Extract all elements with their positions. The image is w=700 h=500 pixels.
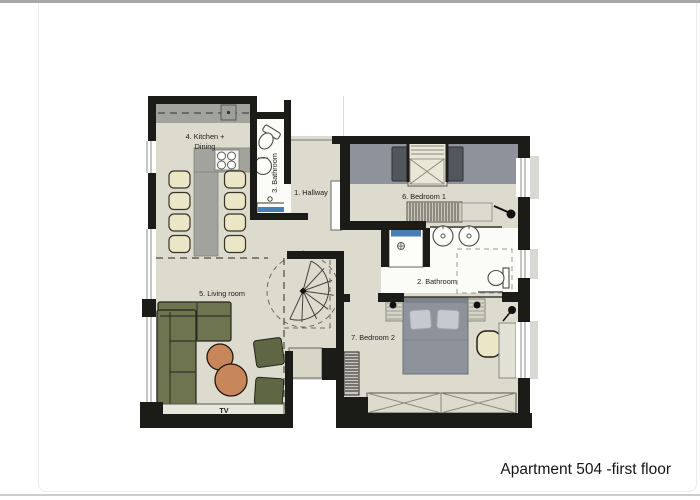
nightstand	[446, 147, 463, 181]
armchair	[477, 331, 501, 357]
tv-label: TV	[219, 406, 228, 415]
sink	[255, 158, 272, 175]
cooktop	[215, 150, 239, 170]
room-label-bathroom2: 2. Bathroom	[417, 277, 457, 286]
bedside-lamp	[390, 302, 397, 309]
room-label-living: 5. Living room	[199, 289, 245, 298]
basin	[433, 225, 453, 246]
bed1	[407, 140, 449, 186]
kitchen-island	[194, 172, 218, 256]
room-label-kitchen-1: 4. Kitchen +	[186, 132, 225, 141]
room-label-bathroom3: 3. Bathroom	[270, 153, 279, 193]
basin	[459, 225, 479, 246]
plan-caption: Apartment 504 -first floor	[500, 461, 671, 479]
room-label-bedroom1: 6. Bedroom 1	[402, 192, 446, 201]
room-label-bedroom2: 7. Bedroom 2	[351, 333, 395, 342]
floor-plan: 4. Kitchen + Dining 3. Bathroom 1. Hallw…	[0, 0, 700, 500]
room-label-kitchen-2: Dining	[195, 142, 216, 151]
floor-plan-page: 4. Kitchen + Dining 3. Bathroom 1. Hallw…	[0, 0, 700, 500]
bedside-lamp	[474, 302, 481, 309]
shower	[389, 228, 423, 267]
storage-closet	[289, 348, 340, 380]
nightstand	[392, 147, 409, 181]
radiator	[344, 352, 359, 395]
bed2	[403, 298, 468, 374]
desk	[499, 323, 516, 378]
bathroom3-door-gap	[284, 184, 291, 213]
room-label-hallway: 1. Hallway	[294, 188, 328, 197]
wardrobe2	[367, 393, 516, 413]
